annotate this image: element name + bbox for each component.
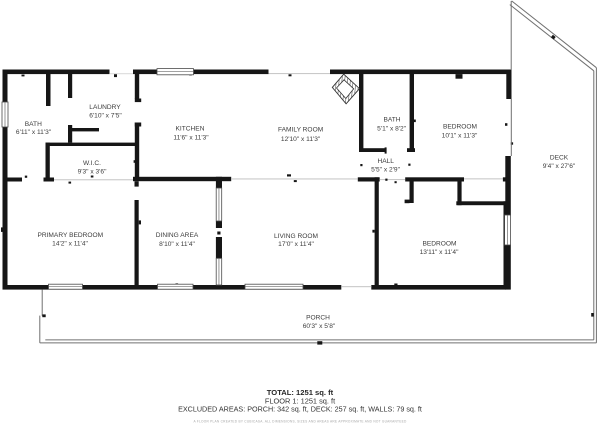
svg-text:12'10" x 11'3": 12'10" x 11'3" bbox=[281, 136, 321, 143]
svg-text:BEDROOM: BEDROOM bbox=[422, 241, 456, 248]
svg-text:DECK: DECK bbox=[550, 155, 569, 162]
svg-text:BATH: BATH bbox=[383, 117, 400, 124]
svg-text:6'10" x 7'5": 6'10" x 7'5" bbox=[89, 113, 122, 120]
svg-text:5'1" x 8'2": 5'1" x 8'2" bbox=[377, 126, 406, 133]
svg-text:9'4" x 27'6": 9'4" x 27'6" bbox=[543, 163, 576, 170]
svg-text:17'0" x 11'4": 17'0" x 11'4" bbox=[278, 241, 314, 248]
svg-text:PRIMARY BEDROOM: PRIMARY BEDROOM bbox=[37, 232, 103, 239]
svg-text:13'11" x 11'4": 13'11" x 11'4" bbox=[420, 249, 460, 256]
svg-text:PORCH: PORCH bbox=[306, 314, 330, 321]
svg-text:8'10" x 11'4": 8'10" x 11'4" bbox=[159, 241, 195, 248]
svg-text:LAUNDRY: LAUNDRY bbox=[89, 104, 121, 111]
svg-text:5'5" x 2'9": 5'5" x 2'9" bbox=[371, 167, 400, 174]
svg-text:HALL: HALL bbox=[377, 158, 394, 165]
svg-text:EXCLUDED AREAS: PORCH: 342 sq.: EXCLUDED AREAS: PORCH: 342 sq. ft, DECK:… bbox=[178, 405, 422, 414]
svg-text:BATH: BATH bbox=[25, 121, 42, 128]
svg-text:10'1" x 11'3": 10'1" x 11'3" bbox=[442, 133, 478, 140]
svg-text:9'3" x 3'6": 9'3" x 3'6" bbox=[78, 169, 107, 176]
svg-text:6'11" x 11'3": 6'11" x 11'3" bbox=[16, 129, 52, 136]
svg-text:A FLOOR PLAN CREATED BY CUBICA: A FLOOR PLAN CREATED BY CUBICASA. ALL DI… bbox=[193, 420, 407, 424]
svg-text:14'2" x 11'4": 14'2" x 11'4" bbox=[52, 241, 88, 248]
svg-text:60'3" x 5'8": 60'3" x 5'8" bbox=[303, 323, 336, 330]
svg-text:W.I.C.: W.I.C. bbox=[83, 160, 101, 167]
svg-text:11'6" x 11'3": 11'6" x 11'3" bbox=[173, 135, 209, 142]
svg-text:FAMILY ROOM: FAMILY ROOM bbox=[278, 127, 323, 134]
svg-text:DINING AREA: DINING AREA bbox=[156, 232, 199, 239]
svg-text:LIVING ROOM: LIVING ROOM bbox=[274, 233, 318, 240]
svg-text:KITCHEN: KITCHEN bbox=[176, 126, 205, 133]
svg-text:BEDROOM: BEDROOM bbox=[443, 124, 477, 131]
